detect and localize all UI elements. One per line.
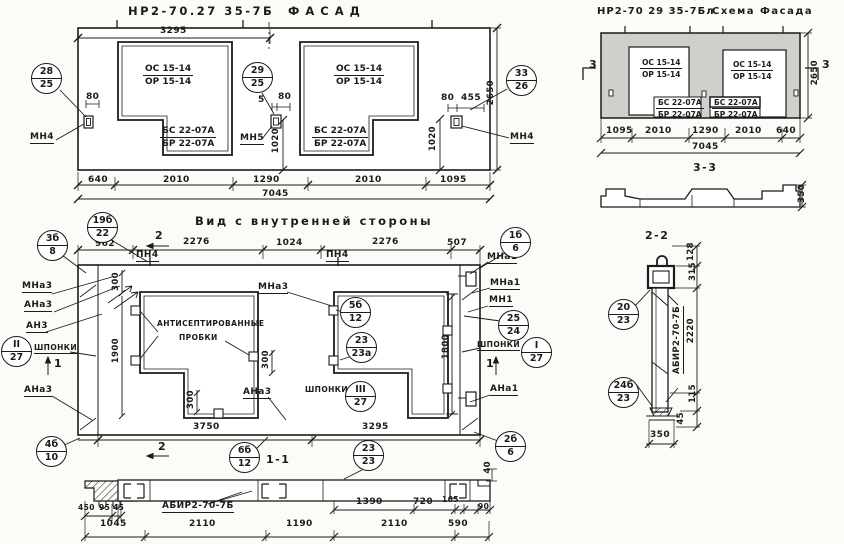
dim-2010: 2010 — [163, 175, 190, 185]
bs-mark: БС 22-07А — [160, 126, 216, 138]
dim-45: 45 — [113, 503, 124, 512]
dim-1900: 1900 — [111, 338, 121, 363]
inner-view-title: Вид с внутренней стороны — [195, 214, 433, 228]
dim-3295: 3295 — [362, 422, 389, 432]
dim-7045: 7045 — [262, 189, 289, 199]
anchor-mn5: МН5 — [240, 133, 264, 145]
dim-2110: 2110 — [189, 519, 216, 529]
label-an3: АН3 — [26, 321, 48, 333]
callout-I-27: I 27 — [521, 337, 552, 368]
blueprint-canvas: НР2-70.27 35-7Б ФАСАД 3295 ОС 15-14 ОР 1… — [0, 0, 844, 544]
facade-opening-label-left: ОС 15-14 ОР 15-14 — [143, 64, 193, 87]
dim-2010: 2010 — [645, 126, 672, 136]
dim-2010: 2010 — [355, 175, 382, 185]
dim-300-a: 300 — [111, 272, 121, 291]
dim-2276: 2276 — [372, 237, 399, 247]
section-2-2-title: 2-2 — [645, 229, 669, 242]
br-mark: БР 22-07А — [160, 138, 216, 149]
callout-24b-23: 24б 23 — [608, 377, 639, 408]
callout-III-27: III 27 — [345, 381, 376, 412]
schema-opening-label-right: ОС 15-14 ОР 15-14 — [731, 60, 773, 81]
section-3-3-title: 3-3 — [693, 161, 717, 174]
anchor-mn4-right: МН4 — [510, 132, 534, 144]
dim-507: 507 — [447, 238, 467, 248]
schema-dim-2650: 2650 — [810, 60, 820, 85]
or-mark: ОР 15-14 — [143, 76, 193, 87]
label-shponki-mid: ШПОНКИ — [305, 385, 348, 394]
dim-1290: 1290 — [253, 175, 280, 185]
facade-subtitle: ФАСАД — [288, 4, 366, 18]
dim-300-b: 300 — [261, 350, 271, 369]
dim-90: 90 — [478, 502, 489, 511]
section-mark-2-bottom: 2 — [158, 440, 167, 453]
label-antiseptic-plugs-2: ПРОБКИ — [179, 333, 218, 342]
dim-40: 40 — [483, 461, 493, 474]
dim-2276: 2276 — [183, 237, 210, 247]
or-mark: ОР 15-14 — [334, 76, 384, 87]
label-ana3-bottom-left: АНа3 — [24, 385, 52, 397]
dim-80: 80 — [86, 92, 99, 102]
section-mark-2-top: 2 — [155, 229, 164, 242]
label-abir-vertical: АБИР2-70-7Б — [672, 306, 684, 374]
dim-1020-right: 1020 — [428, 126, 438, 151]
callout-2b-6: 2б 6 — [495, 431, 526, 462]
dim-640: 640 — [776, 126, 796, 136]
dim-1045: 1045 — [100, 519, 127, 529]
section-mark-3-right: 3 — [822, 58, 831, 71]
callout-6b-12: 6б 12 — [229, 442, 260, 473]
dim-2010: 2010 — [735, 126, 762, 136]
callout-29-25: 29 25 — [242, 62, 273, 93]
schema-title: НР2-70 29 35-7Бл — [597, 6, 715, 17]
dim-1190: 1190 — [286, 519, 313, 529]
dim-300-c: 300 — [186, 390, 196, 409]
label-abir: АБИР2-70-7Б — [162, 501, 234, 513]
label-ana3-mid: АНа3 — [243, 387, 271, 399]
label-mna3: МНа3 — [22, 281, 52, 293]
callout-5b-12: 5б 12 — [340, 297, 371, 328]
callout-28-25: 28 25 — [31, 63, 62, 94]
os-mark: ОС 15-14 — [143, 64, 193, 76]
anchor-pn4-right: ПН4 — [326, 250, 349, 262]
dim-315: 315 — [688, 262, 698, 281]
callout-20-23: 20 23 — [608, 299, 639, 330]
facade-lintel-label-left: БС 22-07А БР 22-07А — [160, 126, 216, 149]
callout-23-23a: 23 23а — [346, 332, 377, 363]
dim-350: 350 — [650, 430, 670, 440]
bs-mark: БС 22-07А — [312, 126, 368, 138]
dim-128: 128 — [686, 242, 696, 261]
label-mna3-mid: МНа3 — [258, 282, 288, 294]
drawing-linework — [0, 0, 844, 544]
br-mark: БР 22-07А — [312, 138, 368, 149]
dim-1390: 1390 — [356, 497, 383, 507]
dim-720: 720 — [413, 497, 433, 507]
section-1-1-linework — [81, 469, 497, 541]
label-shponki-right: ШПОНКИ — [477, 340, 520, 351]
dim-2220: 2220 — [686, 318, 696, 343]
dim-1020-mid: 1020 — [271, 128, 281, 153]
dim-115: 115 — [688, 384, 698, 403]
facade-dim-3295: 3295 — [160, 26, 187, 36]
section-mark-1-right: 1 — [486, 357, 495, 370]
dim-1800: 1800 — [441, 334, 451, 359]
callout-II-27: II 27 — [1, 336, 32, 367]
dim-1095: 1095 — [440, 175, 467, 185]
section-3-3-height: 350 — [797, 184, 807, 203]
facade-title: НР2-70.27 35-7Б — [128, 4, 274, 18]
dim-1290: 1290 — [692, 126, 719, 136]
dim-80: 80 — [278, 92, 291, 102]
schema-lintel-left: БС 22-07А БР 22-07А — [656, 98, 704, 119]
dim-640: 640 — [88, 175, 108, 185]
dim-455: 455 — [461, 93, 481, 103]
label-mna1-b: МНа1 — [490, 278, 520, 290]
dim-590: 590 — [448, 519, 468, 529]
dim-95: 95 — [99, 503, 110, 512]
callout-3b-8: 3б 8 — [37, 230, 68, 261]
dim-165: 165 — [442, 495, 459, 504]
section-1-1-title: 1-1 — [266, 453, 290, 466]
label-ana1: АНа1 — [490, 384, 518, 396]
dim-5: 5 — [258, 95, 265, 105]
dim-1024: 1024 — [276, 238, 303, 248]
label-ana3: АНа3 — [24, 300, 52, 312]
anchor-pn4-left: ПН4 — [136, 250, 159, 262]
callout-1b-6: 1б 6 — [500, 227, 531, 258]
dim-2650: 2650 — [486, 80, 496, 105]
callout-33-26: 33 26 — [506, 65, 537, 96]
callout-23-23: 23 23 — [353, 440, 384, 471]
dim-450: 450 — [78, 503, 95, 512]
dim-3750: 3750 — [193, 422, 220, 432]
label-shponki-left: ШПОНКИ — [34, 343, 77, 354]
facade-opening-label-right: ОС 15-14 ОР 15-14 — [334, 64, 384, 87]
facade-lintel-label-right: БС 22-07А БР 22-07А — [312, 126, 368, 149]
os-mark: ОС 15-14 — [334, 64, 384, 76]
dim-1095: 1095 — [606, 126, 633, 136]
dim-7045: 7045 — [692, 142, 719, 152]
callout-25-24: 25 24 — [498, 310, 529, 341]
anchor-mn4-left: МН4 — [30, 132, 54, 144]
label-mn1: МН1 — [489, 295, 513, 307]
schema-lintel-right: БС 22-07А БР 22-07А — [712, 98, 760, 119]
section-mark-3-left: 3 — [589, 58, 598, 71]
dim-80: 80 — [441, 93, 454, 103]
schema-subtitle: Схема Фасада — [712, 6, 813, 17]
label-antiseptic-plugs-1: АНТИСЕПТИРОВАННЫЕ — [157, 319, 264, 328]
callout-19b-22: 19б 22 — [87, 212, 118, 243]
dim-2110: 2110 — [381, 519, 408, 529]
section-mark-1-left: 1 — [54, 357, 63, 370]
schema-opening-label-left: ОС 15-14 ОР 15-14 — [640, 58, 682, 79]
dim-45: 45 — [676, 412, 686, 425]
callout-4b-10: 4б 10 — [36, 436, 67, 467]
